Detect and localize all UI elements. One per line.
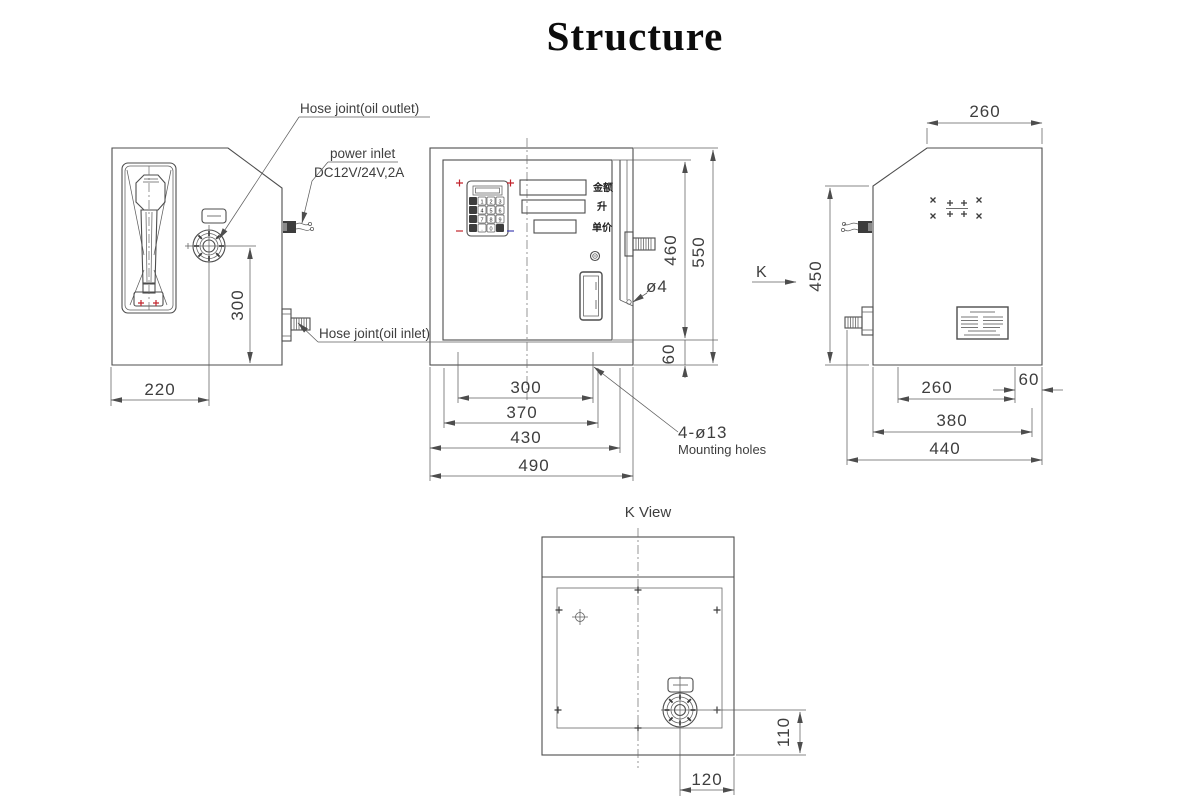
key-5: 5 xyxy=(489,208,492,214)
dim-380: 380 xyxy=(873,411,1032,432)
dim-60-right-text: 60 xyxy=(1019,370,1040,389)
key-2: 2 xyxy=(489,199,492,205)
key-6: 6 xyxy=(498,208,501,214)
key-7: 7 xyxy=(480,217,483,223)
dim-550-text: 550 xyxy=(689,236,708,267)
key-9: 9 xyxy=(498,217,501,223)
k-view-title: K View xyxy=(625,504,672,521)
key-8: 8 xyxy=(489,217,492,223)
dim-60-right: 60 xyxy=(993,370,1063,390)
right-power-connector xyxy=(841,221,872,233)
display-unit-price-label: 单价 xyxy=(592,221,613,234)
dim-430-text: 430 xyxy=(510,428,541,447)
dim-220: 220 xyxy=(111,367,209,406)
hose-inlet-fitting xyxy=(282,309,310,341)
page-title: Structure xyxy=(70,12,1200,60)
dim-450: 450 xyxy=(806,186,869,365)
right-bottom-dims: 260 60 380 440 xyxy=(847,330,1063,465)
dim-380-text: 380 xyxy=(936,411,967,430)
dim-300-left-text: 300 xyxy=(228,289,247,320)
dim-120-text: 120 xyxy=(691,770,722,789)
nozzle-holder xyxy=(122,163,176,313)
key-4: 4 xyxy=(480,208,483,214)
dim-490-text: 490 xyxy=(518,456,549,475)
nozzle-grip xyxy=(136,175,165,210)
hose-inlet-label: Hose joint(oil inlet) xyxy=(319,326,430,341)
dim-300-front: 300 xyxy=(458,378,593,398)
front-hose-fitting xyxy=(625,232,655,256)
dim-110-text: 110 xyxy=(774,717,793,747)
flange-label-plate xyxy=(202,209,226,223)
hole-o4 xyxy=(627,300,631,304)
vent-hole-pattern xyxy=(931,198,982,219)
dim-60-front-text: 60 xyxy=(659,344,678,365)
dim-o4-text: ø4 xyxy=(646,277,668,296)
dim-120: 120 xyxy=(680,757,734,795)
power-inlet-connector xyxy=(283,221,314,233)
key-lock xyxy=(591,252,600,261)
dim-490: 490 xyxy=(430,456,633,476)
dim-220-text: 220 xyxy=(144,380,175,399)
key-3: 3 xyxy=(498,199,501,205)
power-spec-label: DC12V/24V,2A xyxy=(314,165,404,180)
dim-260-bottom-text: 260 xyxy=(921,378,952,397)
label-power-inlet: power inlet DC12V/24V,2A xyxy=(302,146,404,223)
dim-300-left: 300 xyxy=(228,248,250,363)
label-hose-inlet: Hose joint(oil inlet) xyxy=(298,323,430,342)
structure-drawing-page: Structure xyxy=(0,0,1200,800)
hose-outlet-label: Hose joint(oil outlet) xyxy=(300,101,419,116)
keypad-display xyxy=(473,186,502,195)
front-outline xyxy=(430,148,633,365)
front-door-panel xyxy=(443,160,612,340)
front-view: 1 2 3 4 5 6 7 8 9 . 0 xyxy=(430,138,767,481)
dim-260-top: 260 xyxy=(927,102,1042,144)
right-hose-fitting xyxy=(845,307,873,335)
nameplate xyxy=(957,307,1008,339)
display-unit-price: 单价 xyxy=(534,220,613,234)
front-bottom-dims: 300 370 430 490 xyxy=(430,352,633,481)
dim-430: 430 xyxy=(430,428,620,448)
dim-260-bottom: 260 xyxy=(898,378,1015,399)
dim-440: 440 xyxy=(847,439,1042,460)
display-volume: 升 xyxy=(522,200,607,213)
dim-300-front-text: 300 xyxy=(510,378,541,397)
dim-370-text: 370 xyxy=(506,403,537,422)
display-amount: 金额 xyxy=(520,180,613,195)
k-view-label-plate xyxy=(668,678,693,692)
mounting-callout-line2: Mounting holes xyxy=(678,442,767,457)
key-1: 1 xyxy=(480,199,483,205)
dim-370: 370 xyxy=(444,403,598,423)
right-side-view: 260 450 K xyxy=(752,102,1063,465)
power-inlet-label: power inlet xyxy=(330,146,396,161)
nozzle-slot xyxy=(580,272,602,320)
dim-o4-callout: ø4 xyxy=(633,277,668,302)
hinge-strip xyxy=(620,160,633,306)
display-volume-label: 升 xyxy=(597,200,607,213)
dim-460-text: 460 xyxy=(661,234,680,265)
display-amount-label: 金额 xyxy=(592,181,613,194)
k-view-arrow: K xyxy=(752,264,796,282)
key-dot: . xyxy=(481,226,483,232)
structure-drawing: Hose joint(oil outlet) power inlet DC12V… xyxy=(0,0,1200,800)
dim-450-text: 450 xyxy=(806,260,825,291)
dim-260-top-text: 260 xyxy=(969,102,1000,121)
key-0: 0 xyxy=(489,226,492,232)
keypad: 1 2 3 4 5 6 7 8 9 . 0 xyxy=(456,180,514,237)
left-side-view: Hose joint(oil outlet) power inlet DC12V… xyxy=(111,101,430,406)
dim-60-front: 60 xyxy=(659,340,685,378)
mounting-callout-line1: 4-ø13 xyxy=(678,423,727,442)
dim-440-text: 440 xyxy=(929,439,960,458)
dim-110: 110 xyxy=(736,712,806,755)
k-view: K View xyxy=(542,504,806,796)
k-view-hole-mark xyxy=(572,609,588,625)
k-view-arrow-label: K xyxy=(756,264,767,281)
